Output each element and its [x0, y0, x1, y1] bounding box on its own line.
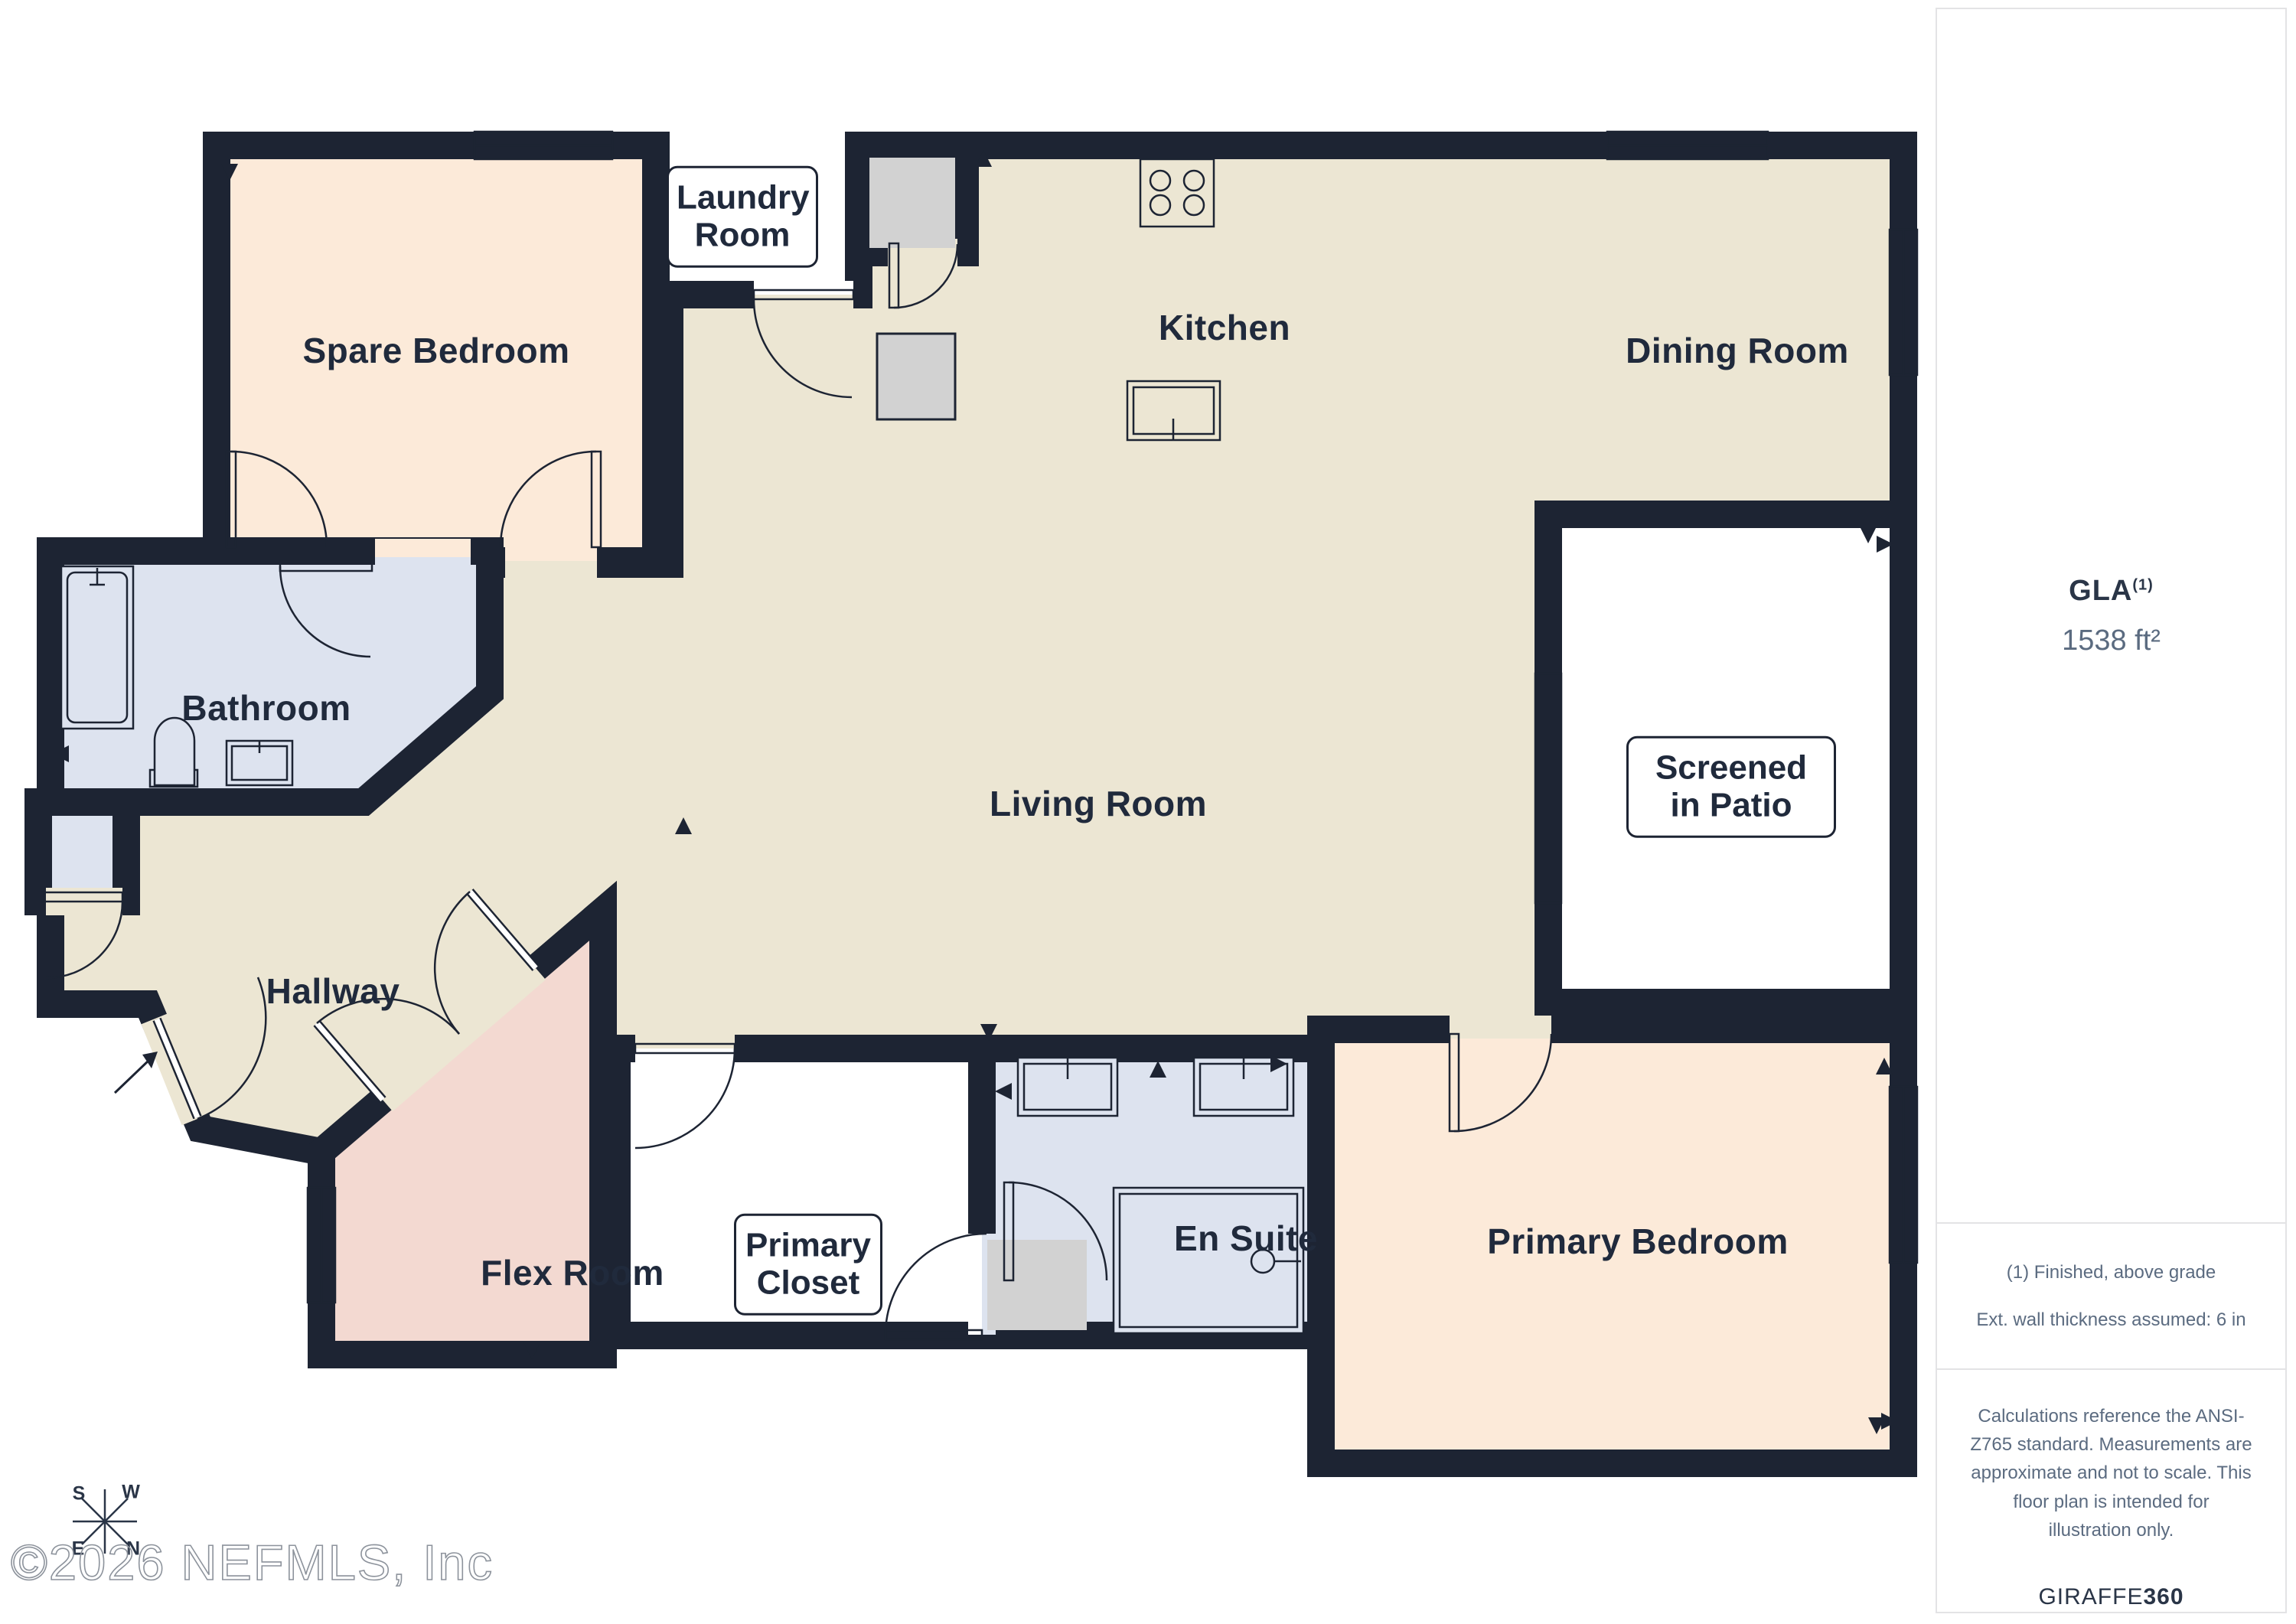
label-box-screened-patio: Screened in Patio [1626, 736, 1836, 838]
ensuite-sink-left-icon [1018, 1058, 1117, 1116]
notes-section: (1) Finished, above grade Ext. wall thic… [1937, 1224, 2285, 1370]
toilet-nook-icon [987, 1240, 1087, 1330]
room-label-en-suite: En Suite [1174, 1218, 1318, 1259]
brand-name: GIRAFFE [2038, 1584, 2143, 1609]
opening-corridor-top [754, 281, 853, 295]
opening-spare-bedroom [505, 536, 597, 561]
floor-plan-page: Spare Bedroom Kitchen Dining Room Bathro… [0, 0, 2296, 1624]
room-label-primary-bedroom: Primary Bedroom [1487, 1221, 1789, 1262]
compass-s: S [73, 1483, 86, 1505]
opening-corridor [754, 295, 853, 308]
shower-icon [1114, 1188, 1303, 1333]
washer-icon [869, 158, 955, 248]
note-wall-thickness: Ext. wall thickness assumed: 6 in [1976, 1309, 2245, 1331]
gla-section: GLA(1) 1538 ft² [1937, 9, 2285, 1224]
opening-bathroom-top [375, 539, 471, 557]
kitchen-sink-icon [1127, 381, 1220, 440]
giraffe360-logo: GIRAFFE360 [2038, 1584, 2183, 1610]
watermark-text: ©2026 NEFMLS, Inc [11, 1534, 494, 1591]
stove-icon [1140, 159, 1214, 227]
opening-primary-bedroom [1450, 1039, 1551, 1062]
disclaimer-text: Calculations reference the ANSI-Z765 sta… [1970, 1402, 2253, 1544]
info-sidebar: GLA(1) 1538 ft² (1) Finished, above grad… [1936, 8, 2287, 1613]
note-finished-above-grade: (1) Finished, above grade [2007, 1262, 2216, 1283]
room-shape-hall-closet [38, 802, 126, 902]
opening-spare-bedroom-2 [505, 561, 597, 579]
room-label-dining-room: Dining Room [1626, 330, 1849, 371]
opening-primary-bedroom-top [1450, 1016, 1551, 1039]
compass-w: W [122, 1482, 140, 1504]
opening-en-suite-left [968, 1234, 982, 1335]
storage-closet-icon [877, 334, 955, 419]
gla-title: GLA(1) [2069, 575, 2154, 608]
gla-value: 1538 ft² [2062, 624, 2161, 657]
gla-label: GLA [2069, 575, 2132, 607]
opening-primary-closet [635, 1048, 735, 1062]
room-label-spare-bedroom: Spare Bedroom [302, 330, 569, 371]
bathtub-icon [61, 566, 133, 729]
room-label-living-room: Living Room [990, 783, 1207, 824]
opening-primary-closet-top [635, 1035, 735, 1048]
disclaimer-section: Calculations reference the ANSI-Z765 sta… [1937, 1370, 2285, 1612]
bathroom-sink-icon [227, 741, 292, 785]
label-box-laundry-room: Laundry Room [667, 166, 818, 268]
room-label-hallway: Hallway [266, 970, 400, 1012]
label-box-primary-closet: Primary Closet [734, 1214, 882, 1316]
room-label-flex-room: Flex Room [481, 1252, 664, 1293]
opening-bathroom [375, 557, 471, 575]
room-label-kitchen: Kitchen [1159, 307, 1290, 348]
room-label-bathroom: Bathroom [181, 687, 351, 729]
brand-suffix: 360 [2143, 1584, 2183, 1609]
gla-note-ref: (1) [2132, 576, 2153, 593]
